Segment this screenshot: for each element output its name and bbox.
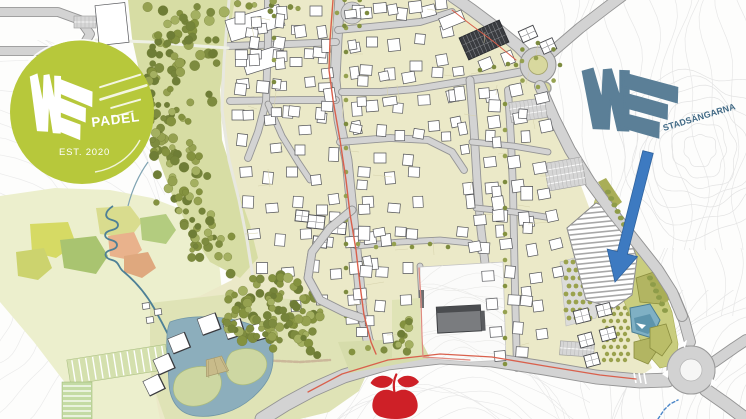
svg-text:EST. 2020: EST. 2020 (59, 147, 110, 158)
